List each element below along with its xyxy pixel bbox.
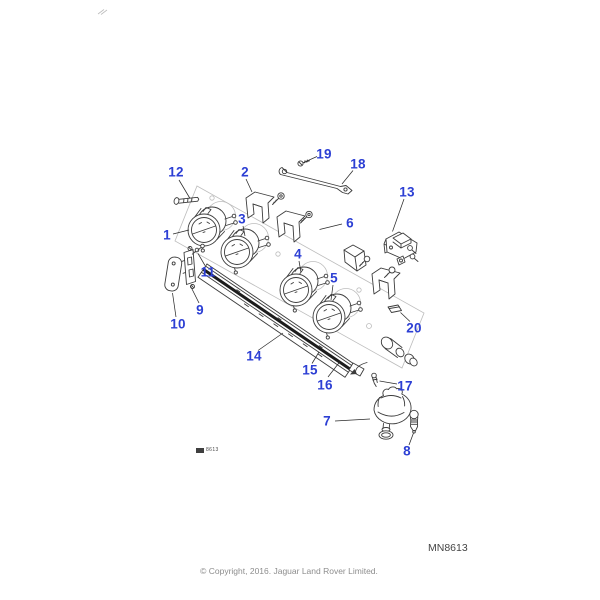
leader-2 (246, 179, 252, 192)
leader-9 (191, 286, 200, 303)
stamp-block-icon (196, 448, 204, 453)
support-strap (279, 168, 352, 195)
callout-17: 17 (397, 379, 412, 393)
exploded-parts-diagram (0, 0, 600, 600)
thumbscrew-2-icon (273, 193, 285, 205)
callout-13: 13 (399, 185, 414, 199)
callout-7: 7 (323, 414, 331, 428)
callout-11: 11 (201, 265, 216, 279)
callout-3: 3 (238, 212, 246, 226)
leader-1 (173, 230, 189, 234)
leader-10 (173, 293, 177, 317)
retainer-clip (388, 305, 402, 313)
callout-14: 14 (246, 349, 261, 363)
gauge-clamp-bracket-2 (246, 192, 274, 223)
callout-18: 18 (350, 157, 365, 171)
callout-15: 15 (302, 363, 317, 377)
clamp-bracket-rear-upper (344, 245, 366, 271)
leader-18 (342, 171, 353, 185)
leader-14 (258, 333, 283, 351)
callout-2: 2 (241, 165, 249, 179)
clamp-bracket-rear-lower (372, 268, 400, 299)
callout-4: 4 (294, 247, 302, 261)
leader-13 (393, 199, 405, 232)
leader-16 (328, 362, 340, 378)
bulb-17-icon (372, 373, 378, 386)
callout-1: 1 (163, 228, 171, 242)
callout-9: 9 (196, 303, 204, 317)
callout-10: 10 (170, 317, 185, 331)
stamp-text: 8613 (206, 448, 219, 453)
copyright-line: © Copyright, 2016. Jaguar Land Rover Lim… (200, 566, 378, 576)
voltage-stabilizer (384, 232, 418, 265)
callout-19: 19 (316, 147, 331, 161)
manual-page: 1 2 3 4 5 6 7 8 9 10 11 12 13 14 15 16 1… (0, 0, 600, 600)
registration-mark (98, 10, 107, 15)
mounting-pad (164, 256, 183, 292)
print-stamp: 8613 (196, 448, 219, 453)
o-ring (379, 431, 393, 439)
leader-12 (179, 180, 190, 199)
callout-16: 16 (317, 378, 332, 392)
gauge-clamp-bracket-6 (277, 211, 305, 242)
holder-cap (403, 352, 419, 367)
leader-19 (304, 157, 317, 163)
screw-12-icon (173, 197, 198, 205)
drawing-number: MN8613 (428, 542, 468, 554)
callout-12: 12 (168, 165, 183, 179)
callout-20: 20 (406, 321, 421, 335)
leader-7 (335, 419, 370, 421)
leader-6 (320, 224, 343, 230)
control-knob (374, 387, 411, 432)
bulb-holder (379, 335, 406, 359)
gauge-3 (221, 229, 270, 274)
callout-6: 6 (346, 216, 354, 230)
callout-5: 5 (330, 271, 338, 285)
bulb-8-icon (410, 410, 418, 433)
leader-17 (380, 381, 398, 384)
callout-8: 8 (403, 444, 411, 458)
